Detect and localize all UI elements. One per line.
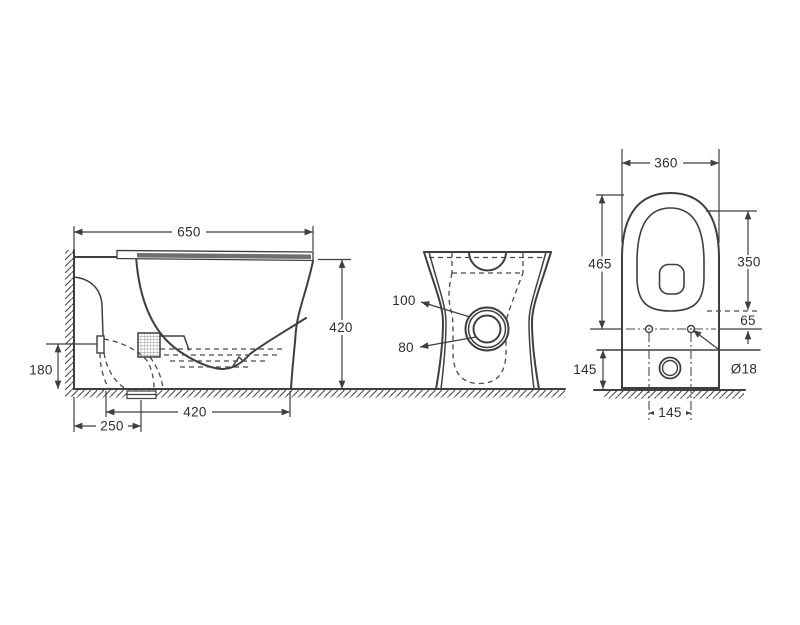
technical-drawing: 650 420 180 420 250 bbox=[0, 0, 800, 625]
dim-seat-height: 420 bbox=[318, 260, 358, 390]
dim-inlet-height: 180 bbox=[29, 344, 97, 389]
plan-view: 360 465 350 65 145 bbox=[573, 149, 765, 420]
inlet-hole-inner-circle bbox=[474, 316, 501, 343]
plan-wall-hatch bbox=[604, 391, 744, 399]
dim-overall-length-label: 465 bbox=[588, 257, 611, 272]
wall-hatch bbox=[65, 250, 74, 397]
fixing-hole-right-center bbox=[690, 328, 692, 330]
trap-dashed-line bbox=[104, 353, 126, 389]
dim-outlet-to-front-label: 420 bbox=[183, 405, 206, 420]
dim-overall-depth: 650 bbox=[74, 225, 313, 252]
dim-hole-spacing: 145 bbox=[649, 405, 691, 420]
dim-inlet-inner-label: 80 bbox=[398, 340, 414, 355]
dim-overall-width-label: 360 bbox=[654, 156, 677, 171]
dim-wall-to-outlet: 250 bbox=[74, 397, 141, 434]
inlet-fitting bbox=[97, 336, 104, 353]
fixing-hole-left-center bbox=[648, 328, 650, 330]
bowl-inner-profile bbox=[136, 256, 306, 369]
trap-dashed-line bbox=[100, 353, 109, 389]
drawing-page: 650 420 180 420 250 bbox=[0, 0, 800, 625]
dim-back-depth-label: 145 bbox=[573, 362, 596, 377]
flush-notch-arc bbox=[469, 252, 506, 271]
dim-seat-length-label: 350 bbox=[737, 255, 760, 270]
dim-seat-to-holes-label: 65 bbox=[740, 313, 756, 328]
dim-hole-spacing-label: 145 bbox=[658, 405, 681, 420]
body-left-outer bbox=[424, 252, 443, 389]
dim-wall-to-outlet-label: 250 bbox=[100, 419, 123, 434]
back-inner-curve bbox=[74, 277, 103, 336]
dim-hole-diameter-label: Ø18 bbox=[731, 362, 757, 377]
body-right-outer bbox=[532, 252, 551, 389]
dim-inlet-inner: 80 bbox=[398, 337, 476, 355]
dim-inlet-outer-label: 100 bbox=[392, 293, 415, 308]
trap-dashed-line bbox=[150, 357, 163, 389]
dim-back-depth: 145 bbox=[573, 350, 603, 389]
dim-seat-height-label: 420 bbox=[329, 320, 352, 335]
dim-overall-length: 465 bbox=[585, 195, 624, 329]
dim-inlet-outer: 100 bbox=[392, 293, 470, 317]
dim-inlet-height-label: 180 bbox=[29, 363, 52, 378]
rear-view: 100 80 bbox=[392, 252, 551, 389]
flush-valve-block bbox=[138, 333, 160, 357]
dim-overall-depth-label: 650 bbox=[177, 225, 200, 240]
